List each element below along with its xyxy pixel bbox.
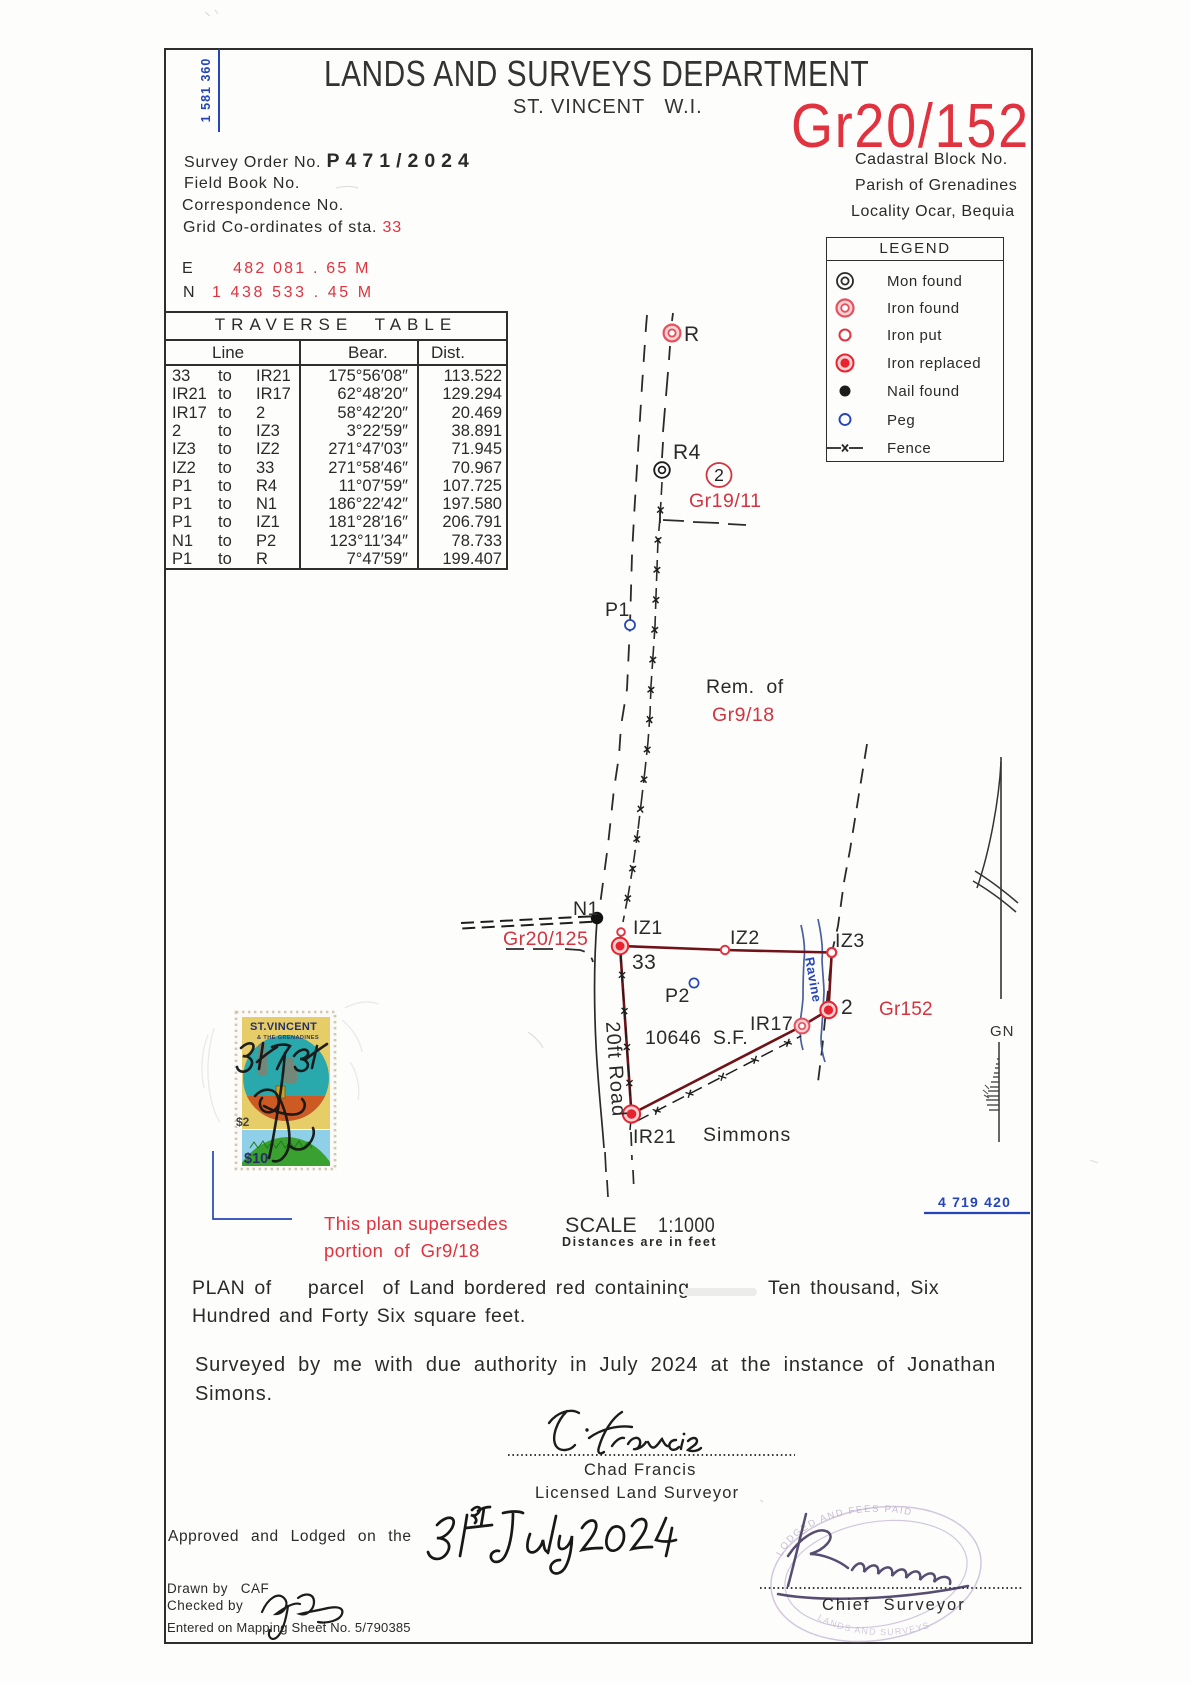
svg-text:10646 S.F.: 10646 S.F. [645,1027,748,1049]
svg-text:R4: R4 [673,441,701,464]
svg-text:Gr9/18: Gr9/18 [712,704,775,726]
svg-text:& THE GRENADINES: & THE GRENADINES [257,1035,319,1041]
svg-text:GN: GN [990,1023,1015,1040]
svg-text:R: R [684,323,700,346]
svg-text:$2: $2 [236,1115,250,1129]
svg-text:N1: N1 [573,898,599,920]
svg-text:LODGED AND FEES PAID: LODGED AND FEES PAID [774,1504,913,1558]
svg-text:IZ1: IZ1 [633,917,663,939]
svg-text:IR17: IR17 [750,1013,793,1035]
svg-text:Gr152: Gr152 [879,999,933,1020]
svg-text:$10: $10 [244,1151,268,1167]
svg-text:Rem. of: Rem. of [706,676,784,698]
svg-text:P1: P1 [605,599,630,621]
svg-text:Simmons: Simmons [703,1124,791,1146]
svg-text:IR21: IR21 [633,1126,676,1148]
svg-text:2: 2 [841,996,853,1019]
svg-text:4 719 420: 4 719 420 [938,1194,1011,1210]
svg-text:IZ2: IZ2 [730,927,760,949]
svg-text:LANDS AND SURVEYS: LANDS AND SURVEYS [816,1612,931,1637]
svg-text:Gr19/11: Gr19/11 [689,490,762,512]
svg-text:Gr20/125: Gr20/125 [503,928,588,950]
svg-text:ST.VINCENT: ST.VINCENT [250,1021,317,1033]
svg-text:33: 33 [632,951,656,974]
svg-text:2: 2 [714,465,724,485]
svg-text:IZ3: IZ3 [835,930,865,952]
svg-text:P2: P2 [665,985,690,1007]
